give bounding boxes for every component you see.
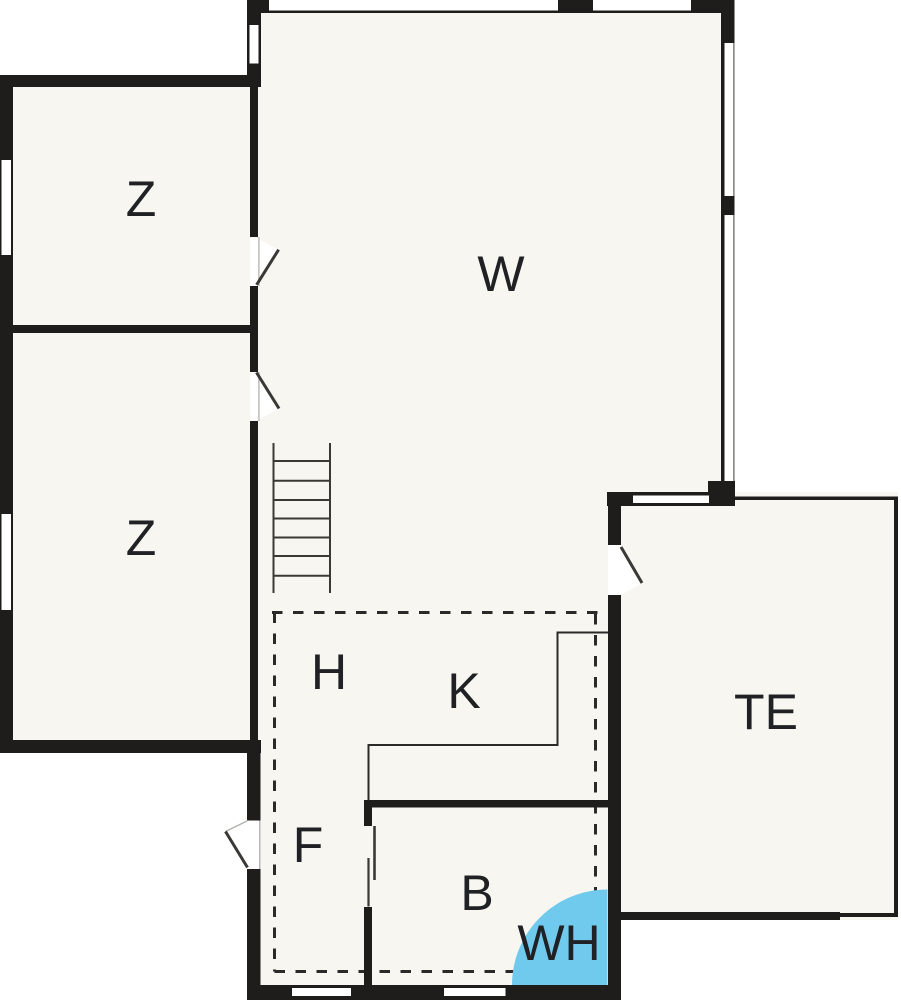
svg-text:F: F (293, 817, 324, 873)
svg-text:Z: Z (126, 171, 157, 227)
svg-text:TE: TE (734, 684, 798, 740)
svg-text:K: K (447, 663, 480, 719)
svg-text:B: B (460, 865, 493, 921)
svg-text:Z: Z (126, 510, 157, 566)
svg-text:W: W (477, 246, 525, 302)
svg-text:WH: WH (517, 915, 600, 971)
svg-text:H: H (311, 644, 347, 700)
